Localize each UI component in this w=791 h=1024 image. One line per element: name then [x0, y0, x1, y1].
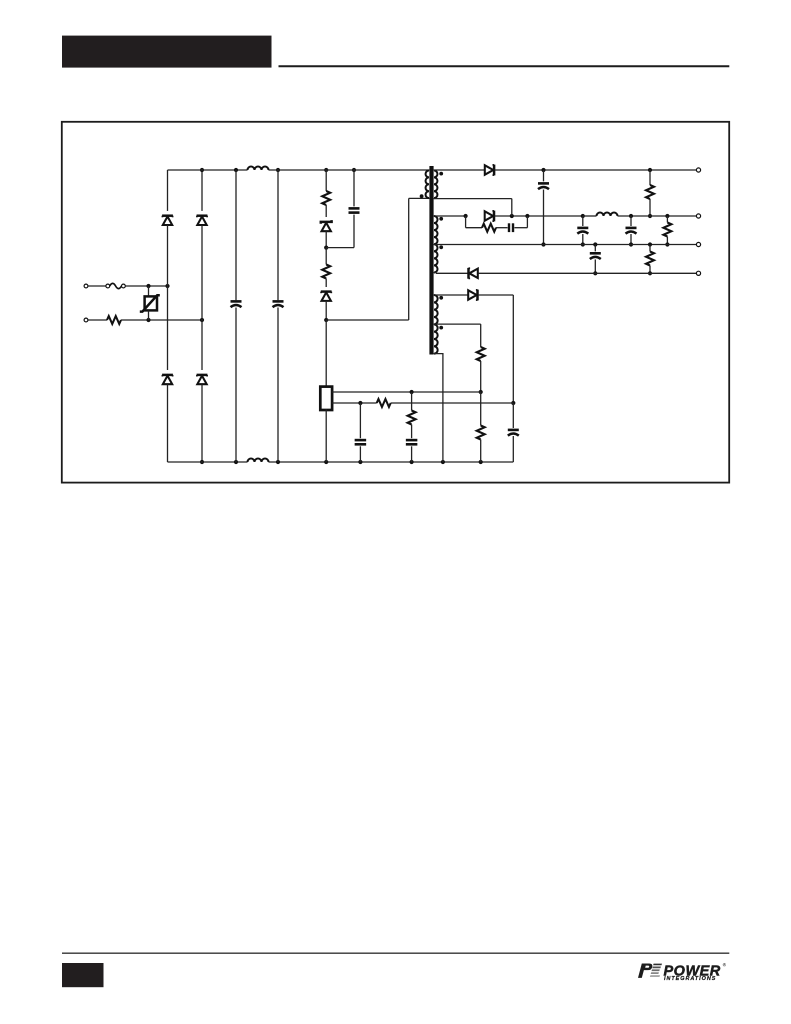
svg-text:INTEGRATIONS: INTEGRATIONS [664, 976, 716, 982]
svg-text:®: ® [723, 962, 727, 967]
